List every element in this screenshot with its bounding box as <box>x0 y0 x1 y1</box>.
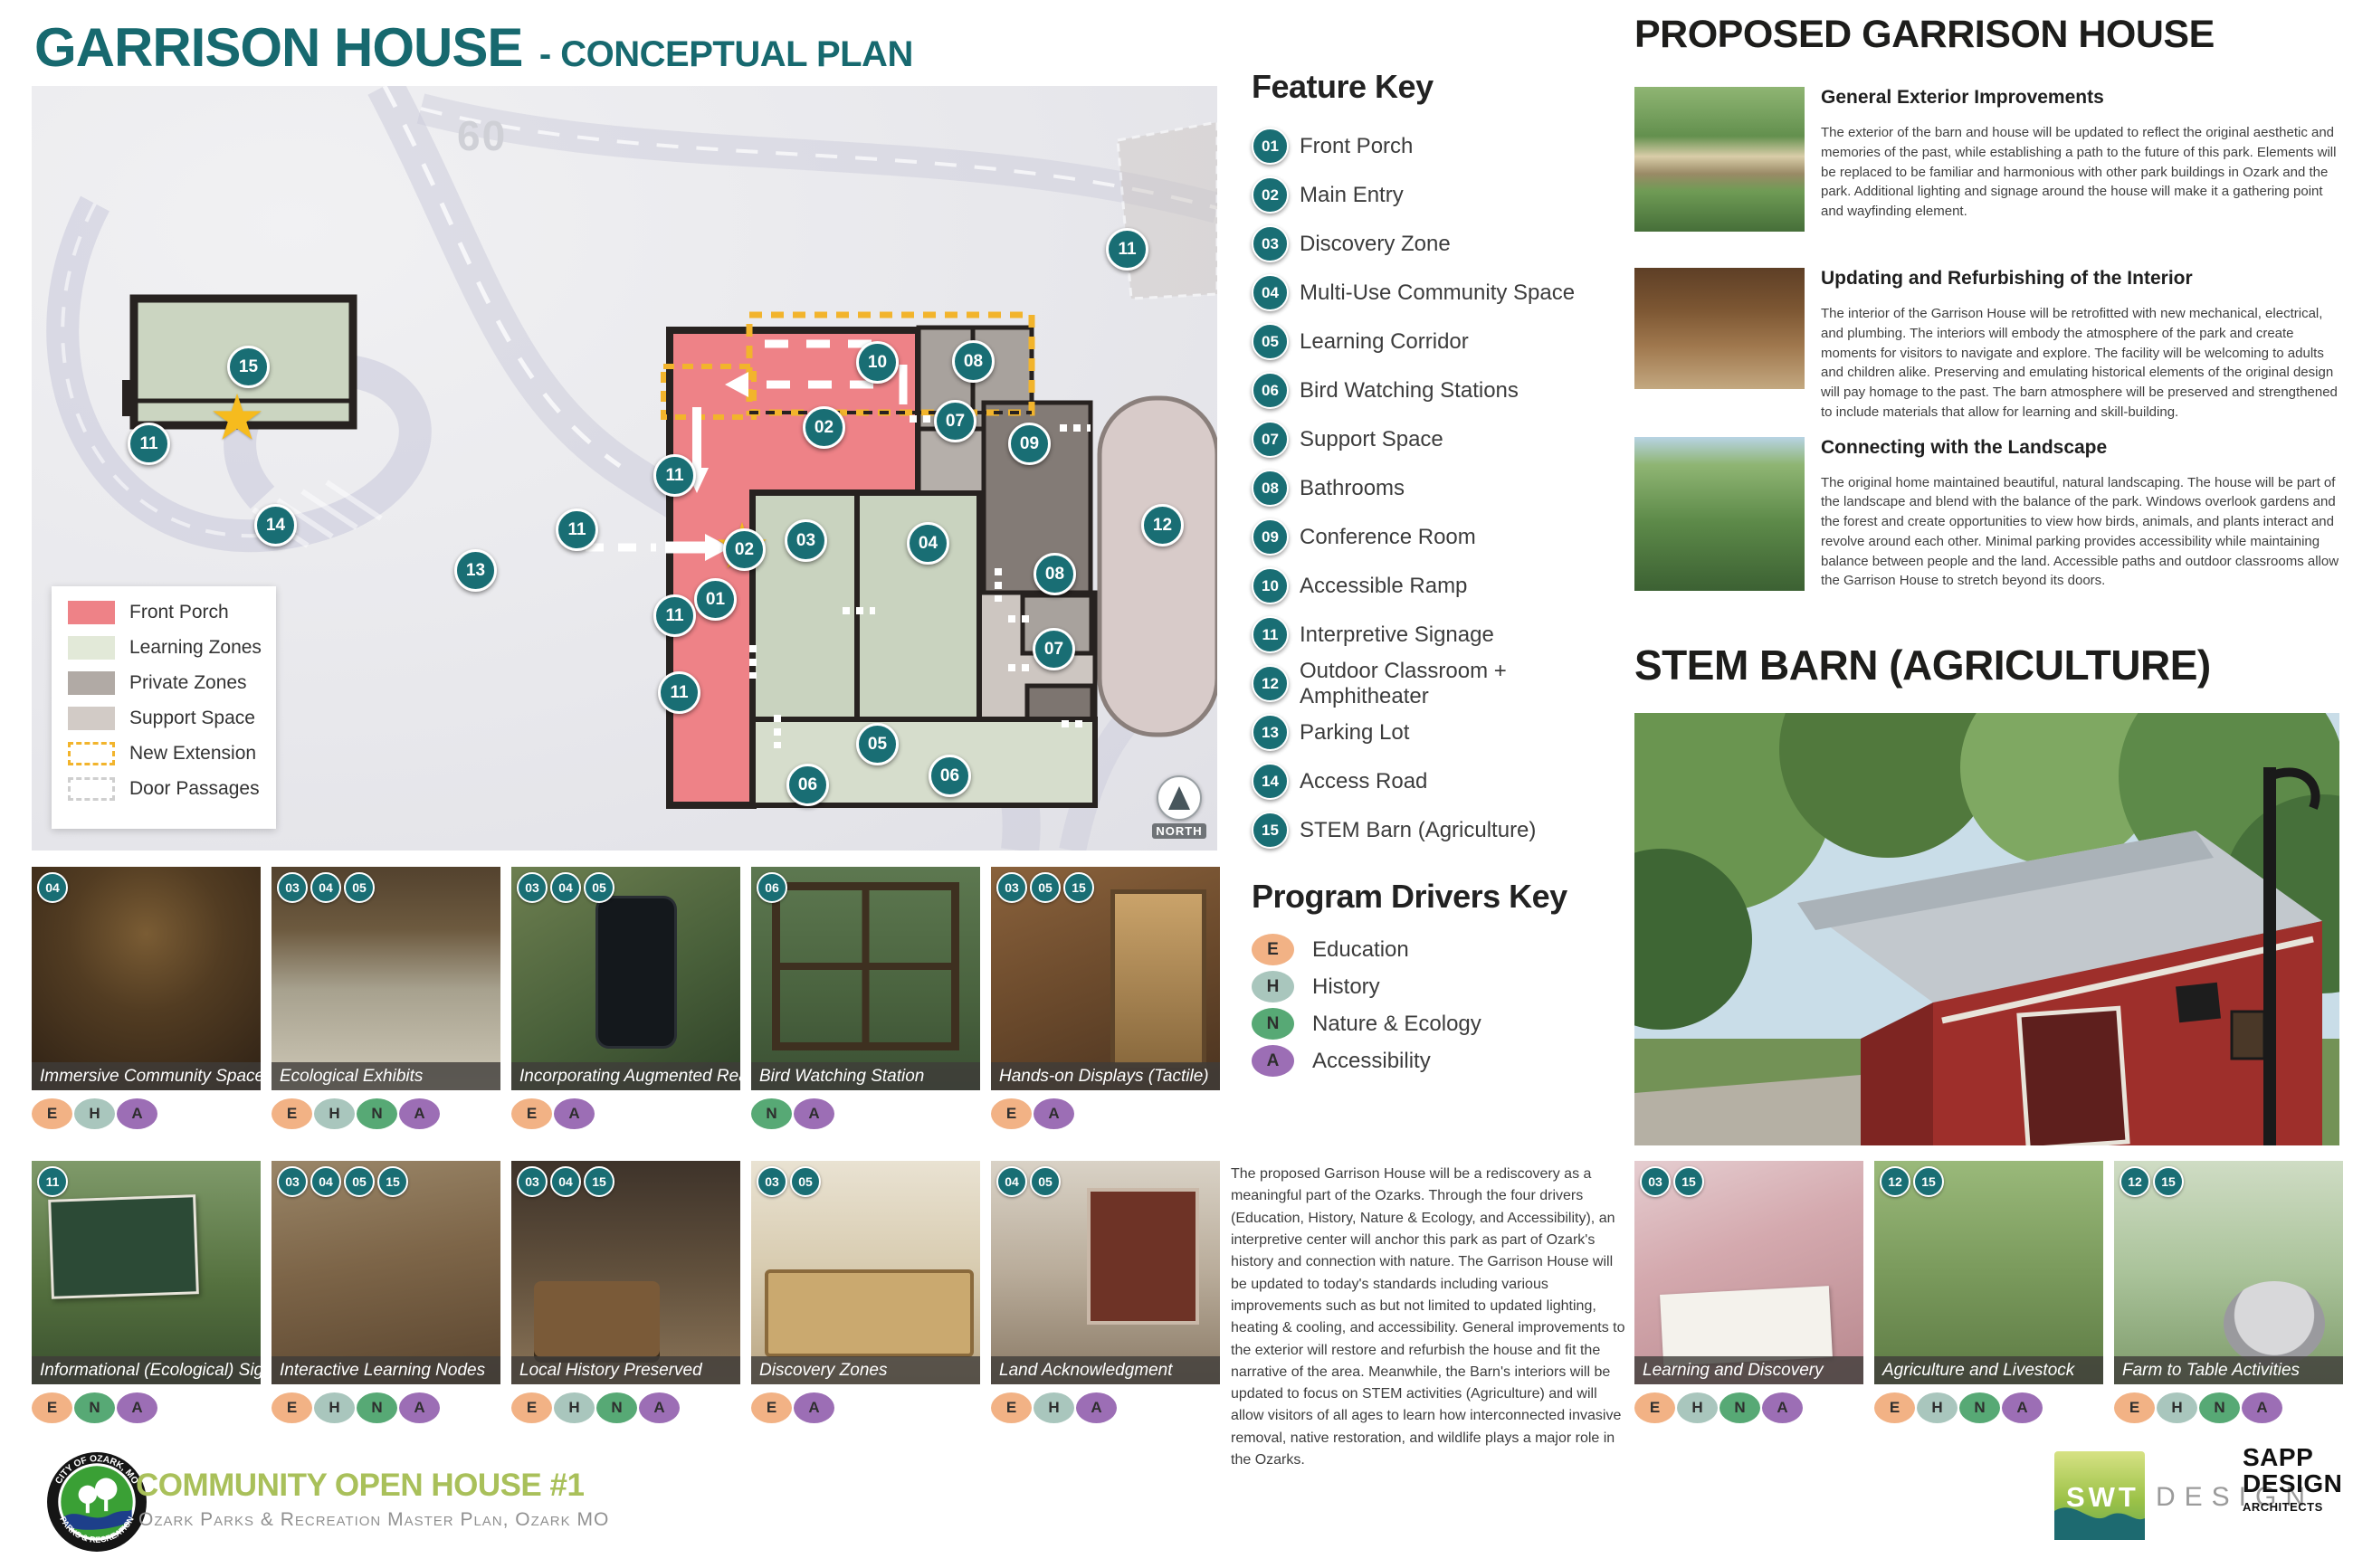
map-marker-15: 15 <box>227 346 270 388</box>
proposed-section: Updating and Refurbishing of the Interio… <box>1634 268 2340 423</box>
driver-badge-E: E <box>1634 1392 1675 1423</box>
feature-label: Bird Watching Stations <box>1300 378 1519 404</box>
legend-label: Learning Zones <box>129 637 262 659</box>
map-marker-07: 07 <box>1033 628 1075 670</box>
photo-driver-badges: ENA <box>32 1392 261 1423</box>
driver-badge-H: H <box>2157 1392 2197 1423</box>
outdoor-classroom-area <box>1100 398 1217 735</box>
driver-badge-E: E <box>2114 1392 2155 1423</box>
photo-caption: Immersive Community Space <box>32 1062 261 1090</box>
feature-label: Bathrooms <box>1300 476 1405 501</box>
feature-number-badge: 06 <box>1252 372 1289 409</box>
feature-key-item-05: 05Learning Corridor <box>1252 325 1632 358</box>
feature-ref-badge-05: 05 <box>790 1166 821 1197</box>
photo-feature-badges: 06 <box>757 872 787 903</box>
section-body: The interior of the Garrison House will … <box>1821 304 2340 423</box>
north-label: NORTH <box>1152 823 1206 839</box>
map-marker-08: 08 <box>1034 553 1076 595</box>
driver-badge-E: E <box>1252 934 1294 965</box>
existing-structure-outline <box>1118 122 1217 299</box>
driver-badge-E: E <box>271 1098 312 1129</box>
highway-60-watermark: 60 <box>457 111 507 160</box>
photo-feature-badges: 1215 <box>2120 1166 2184 1197</box>
legend-item-learning: Learning Zones <box>68 636 276 660</box>
driver-badge-H: H <box>1034 1392 1074 1423</box>
gallery-photo-learning: 0315Learning and Discovery <box>1634 1161 1863 1384</box>
legend-item-door: Door Passages <box>68 777 276 801</box>
driver-badge-A: A <box>1252 1045 1294 1077</box>
feature-ref-badge-05: 05 <box>344 872 375 903</box>
feature-ref-badge-04: 04 <box>550 1166 581 1197</box>
program-drivers-title: Program Drivers Key <box>1252 878 1632 916</box>
gallery-photo-ar: 030405Incorporating Augmented Reality <box>511 867 740 1090</box>
photo-caption: Incorporating Augmented Reality <box>511 1062 740 1090</box>
stem-barn-photo <box>1634 713 2339 1145</box>
photo-feature-badges: 04 <box>37 872 68 903</box>
legend-swatch-support <box>68 707 115 730</box>
title-main: GARRISON HOUSE <box>34 17 522 78</box>
legend-item-support: Support Space <box>68 707 276 730</box>
feature-ref-badge-15: 15 <box>2153 1166 2184 1197</box>
proposed-garrison-house-title: PROPOSED GARRISON HOUSE <box>1634 13 2215 57</box>
feature-key-item-07: 07Support Space <box>1252 423 1632 456</box>
gallery-photo-land: 0405Land Acknowledgment <box>991 1161 1220 1384</box>
photo-feature-badges: 0315 <box>1640 1166 1704 1197</box>
gallery-card: 11Informational (Ecological) SignageENA <box>32 1161 261 1423</box>
photo-caption: Learning and Discovery <box>1634 1356 1863 1384</box>
driver-badge-N: N <box>1719 1392 1760 1423</box>
feature-number-badge: 02 <box>1252 176 1289 214</box>
sapp-line-3: ARCHITECTS <box>2243 1500 2342 1514</box>
map-marker-06: 06 <box>929 755 971 797</box>
photo-driver-badges: EHA <box>32 1098 261 1129</box>
map-marker-10: 10 <box>856 341 899 384</box>
proposed-section-text: General Exterior ImprovementsThe exterio… <box>1821 87 2340 232</box>
table-icon <box>765 1269 974 1357</box>
gallery-card: 030415Local History PreservedEHNA <box>511 1161 740 1423</box>
photo-caption: Local History Preserved <box>511 1356 740 1384</box>
feature-ref-badge-12: 12 <box>1880 1166 1910 1197</box>
gallery-card: 04Immersive Community SpaceEHA <box>32 867 261 1129</box>
feature-key-item-03: 03Discovery Zone <box>1252 227 1632 261</box>
sapp-design-logo: SAPP DESIGN ARCHITECTS <box>2243 1444 2342 1514</box>
gallery-card: 1215Agriculture and LivestockEHNA <box>1874 1161 2103 1423</box>
feature-number-badge: 13 <box>1252 714 1289 751</box>
map-marker-05: 05 <box>856 723 899 765</box>
project-description: The proposed Garrison House will be a re… <box>1231 1164 1627 1471</box>
photo-caption: Interactive Learning Nodes <box>271 1356 500 1384</box>
feature-key-item-01: 01Front Porch <box>1252 129 1632 163</box>
feature-ref-badge-03: 03 <box>517 872 548 903</box>
legend-swatch-private <box>68 671 115 695</box>
gallery-card: 1215Farm to Table ActivitiesEHNA <box>2114 1161 2343 1423</box>
gallery-photo-livestock: 1215Agriculture and Livestock <box>1874 1161 2103 1384</box>
driver-badge-A: A <box>399 1098 440 1129</box>
driver-badge-A: A <box>1076 1392 1117 1423</box>
driver-badge-A: A <box>639 1392 680 1423</box>
photo-caption: Ecological Exhibits <box>271 1062 500 1090</box>
map-marker-11: 11 <box>556 508 598 551</box>
photo-driver-badges: EHNA <box>1874 1392 2103 1423</box>
north-arrow-icon <box>1157 775 1202 821</box>
gallery-photo-discovery: 0305Discovery Zones <box>751 1161 980 1384</box>
driver-badge-E: E <box>751 1392 792 1423</box>
sapp-line-1: SAPP <box>2243 1444 2342 1470</box>
driver-badge-A: A <box>1762 1392 1803 1423</box>
map-marker-06: 06 <box>786 764 829 806</box>
feature-key-item-10: 10Accessible Ramp <box>1252 569 1632 603</box>
driver-label: History <box>1312 974 1380 1000</box>
legend-item-private: Private Zones <box>68 671 276 695</box>
feature-key-item-08: 08Bathrooms <box>1252 471 1632 505</box>
map-marker-08: 08 <box>952 340 995 383</box>
proposed-section: General Exterior ImprovementsThe exterio… <box>1634 87 2340 232</box>
photo-driver-badges: EHNA <box>1634 1392 1863 1423</box>
feature-ref-badge-12: 12 <box>2120 1166 2150 1197</box>
feature-ref-badge-03: 03 <box>277 1166 308 1197</box>
feature-label: Learning Corridor <box>1300 329 1469 355</box>
feature-number-badge: 12 <box>1252 665 1289 702</box>
photo-driver-badges: NA <box>751 1098 980 1129</box>
feature-label: Parking Lot <box>1300 720 1409 746</box>
driver-label: Accessibility <box>1312 1049 1431 1074</box>
feature-ref-badge-15: 15 <box>584 1166 614 1197</box>
north-arrow: NORTH <box>1152 775 1206 839</box>
driver-badge-N: N <box>596 1392 637 1423</box>
feature-ref-badge-04: 04 <box>550 872 581 903</box>
photo-driver-badges: EHNA <box>511 1392 740 1423</box>
feature-ref-badge-05: 05 <box>1030 1166 1061 1197</box>
photo-driver-badges: EHNA <box>271 1098 500 1129</box>
legend-label: Private Zones <box>129 672 247 694</box>
feature-number-badge: 01 <box>1252 128 1289 165</box>
legend-swatch-learning <box>68 636 115 660</box>
feature-number-badge: 14 <box>1252 763 1289 800</box>
feature-key-item-02: 02Main Entry <box>1252 178 1632 212</box>
feature-ref-badge-05: 05 <box>1030 872 1061 903</box>
feature-label: Discovery Zone <box>1300 232 1451 257</box>
gallery-photo-exhibits: 030405Ecological Exhibits <box>271 867 500 1090</box>
window-icon <box>772 882 959 1050</box>
driver-badge-A: A <box>399 1392 440 1423</box>
section-body: The original home maintained beautiful, … <box>1821 473 2340 592</box>
feature-key-item-12: 12Outdoor Classroom + Amphitheater <box>1252 667 1632 700</box>
photo-driver-badges: EHA <box>991 1392 1220 1423</box>
feature-number-badge: 10 <box>1252 567 1289 604</box>
page-title: GARRISON HOUSE - CONCEPTUAL PLAN <box>34 16 913 79</box>
map-legend: Front PorchLearning ZonesPrivate ZonesSu… <box>52 586 276 829</box>
proposed-section: Connecting with the LandscapeThe origina… <box>1634 437 2340 592</box>
gallery-card: 030405Ecological ExhibitsEHNA <box>271 867 500 1129</box>
wagon-icon <box>534 1281 660 1357</box>
legend-item-porch: Front Porch <box>68 601 276 624</box>
photo-caption: Agriculture and Livestock <box>1874 1356 2103 1384</box>
panel-icon <box>1087 1188 1199 1325</box>
photo-driver-badges: EA <box>991 1098 1220 1129</box>
map-marker-11: 11 <box>128 423 170 465</box>
feature-key-item-09: 09Conference Room <box>1252 520 1632 554</box>
driver-badge-H: H <box>314 1392 355 1423</box>
feature-key: Feature Key 01Front Porch02Main Entry03D… <box>1252 68 1632 862</box>
gallery-card: 0305Discovery ZonesEA <box>751 1161 980 1423</box>
feature-number-badge: 05 <box>1252 323 1289 360</box>
section-heading: Connecting with the Landscape <box>1821 437 2340 459</box>
feature-ref-badge-05: 05 <box>344 1166 375 1197</box>
program-drivers-list: EEducationHHistoryNNature & EcologyAAcce… <box>1252 934 1632 1077</box>
feature-ref-badge-15: 15 <box>1063 872 1094 903</box>
driver-badge-H: H <box>1917 1392 1958 1423</box>
photo-feature-badges: 1215 <box>1880 1166 1944 1197</box>
feature-ref-badge-03: 03 <box>996 872 1027 903</box>
gallery-card: 03040515Interactive Learning NodesEHNA <box>271 1161 500 1423</box>
open-house-title: COMMUNITY OPEN HOUSE #1 <box>136 1468 584 1504</box>
photo-feature-badges: 11 <box>37 1166 68 1197</box>
city-of-ozark-seal: CITY OF OZARK, MO PARKS & RECREATION <box>45 1450 148 1554</box>
stem-gallery-row: 0315Learning and DiscoveryEHNA1215Agricu… <box>1634 1161 2343 1423</box>
gallery-photo-nodes: 03040515Interactive Learning Nodes <box>271 1161 500 1384</box>
legend-label: Door Passages <box>129 778 260 800</box>
feature-ref-badge-15: 15 <box>1673 1166 1704 1197</box>
feature-ref-badge-04: 04 <box>310 1166 341 1197</box>
photo-driver-badges: EHNA <box>2114 1392 2343 1423</box>
photo-caption: Hands-on Displays (Tactile) <box>991 1062 1220 1090</box>
photo-caption: Bird Watching Station <box>751 1062 980 1090</box>
map-marker-09: 09 <box>1008 423 1051 465</box>
map-marker-11: 11 <box>658 671 700 714</box>
photo-feature-badges: 030515 <box>996 872 1094 903</box>
feature-label: Outdoor Classroom + Amphitheater <box>1300 659 1632 709</box>
feature-key-list: 01Front Porch02Main Entry03Discovery Zon… <box>1252 129 1632 847</box>
photo-feature-badges: 030405 <box>277 872 375 903</box>
barn-photo-illustration <box>1634 713 2339 1145</box>
feature-label: STEM Barn (Agriculture) <box>1300 818 1536 843</box>
gallery-photo-community: 04Immersive Community Space <box>32 867 261 1090</box>
driver-badge-E: E <box>271 1392 312 1423</box>
feature-ref-badge-06: 06 <box>757 872 787 903</box>
driver-badge-H: H <box>554 1392 595 1423</box>
map-marker-11: 11 <box>653 594 696 637</box>
feature-ref-badge-03: 03 <box>1640 1166 1671 1197</box>
photo-caption: Land Acknowledgment <box>991 1356 1220 1384</box>
gallery-card: 030405Incorporating Augmented RealityEA <box>511 867 740 1129</box>
feature-number-badge: 09 <box>1252 518 1289 556</box>
north-triangle-icon <box>1168 786 1190 810</box>
legend-label: New Extension <box>129 743 256 765</box>
driver-badge-A: A <box>117 1098 157 1129</box>
feature-ref-badge-04: 04 <box>37 872 68 903</box>
feature-ref-badge-05: 05 <box>584 872 614 903</box>
section-heading: Updating and Refurbishing of the Interio… <box>1821 268 2340 290</box>
program-driver-item-A: AAccessibility <box>1252 1045 1632 1077</box>
driver-badge-H: H <box>1677 1392 1718 1423</box>
driver-badge-E: E <box>511 1098 552 1129</box>
feature-ref-badge-11: 11 <box>37 1166 68 1197</box>
feature-number-badge: 07 <box>1252 421 1289 458</box>
feature-ref-badge-15: 15 <box>377 1166 408 1197</box>
legend-label: Front Porch <box>129 602 229 623</box>
gallery-card: 0315Learning and DiscoveryEHNA <box>1634 1161 1863 1423</box>
map-marker-14: 14 <box>254 504 297 546</box>
feature-ref-badge-04: 04 <box>996 1166 1027 1197</box>
sign-icon <box>48 1194 199 1298</box>
feature-label: Conference Room <box>1300 525 1476 550</box>
driver-badge-A: A <box>554 1098 595 1129</box>
phone-icon <box>598 898 673 1046</box>
driver-badge-H: H <box>74 1098 115 1129</box>
proposed-sections: General Exterior ImprovementsThe exterio… <box>1634 87 2340 591</box>
driver-badge-H: H <box>1252 971 1294 1003</box>
driver-badge-A: A <box>2002 1392 2043 1423</box>
map-marker-03: 03 <box>785 519 827 562</box>
photo-feature-badges: 0405 <box>996 1166 1061 1197</box>
photo-driver-badges: EA <box>751 1392 980 1423</box>
driver-badge-A: A <box>794 1098 834 1129</box>
proposed-section-text: Connecting with the LandscapeThe origina… <box>1821 437 2340 592</box>
driver-badge-N: N <box>74 1392 115 1423</box>
driver-badge-E: E <box>511 1392 552 1423</box>
proposed-section-text: Updating and Refurbishing of the Interio… <box>1821 268 2340 423</box>
photo-caption: Informational (Ecological) Signage <box>32 1356 261 1384</box>
paper-icon <box>1660 1286 1833 1366</box>
program-drivers-key: Program Drivers Key EEducationHHistoryNN… <box>1252 878 1632 1082</box>
feature-ref-badge-03: 03 <box>277 872 308 903</box>
driver-badge-E: E <box>32 1098 72 1129</box>
map-marker-01: 01 <box>694 578 737 621</box>
photo-feature-badges: 030415 <box>517 1166 614 1197</box>
feature-label: Support Space <box>1300 427 1443 452</box>
driver-badge-E: E <box>991 1392 1032 1423</box>
section-heading: General Exterior Improvements <box>1821 87 2340 109</box>
map-marker-02: 02 <box>723 528 766 571</box>
title-sub: - CONCEPTUAL PLAN <box>539 34 913 74</box>
driver-badge-N: N <box>2199 1392 2240 1423</box>
driver-badge-N: N <box>1252 1008 1294 1040</box>
feature-key-title: Feature Key <box>1252 68 1632 106</box>
driver-badge-E: E <box>1874 1392 1915 1423</box>
feature-ref-badge-03: 03 <box>757 1166 787 1197</box>
feature-key-item-11: 11Interpretive Signage <box>1252 618 1632 651</box>
driver-badge-E: E <box>991 1098 1032 1129</box>
photo-driver-badges: EA <box>511 1098 740 1129</box>
legend-swatch-porch <box>68 601 115 624</box>
feature-number-badge: 03 <box>1252 225 1289 262</box>
section-body: The exterior of the barn and house will … <box>1821 123 2340 222</box>
open-house-subtitle: Ozark Parks & Recreation Master Plan, Oz… <box>138 1509 609 1531</box>
gallery-photo-farm: 1215Farm to Table Activities <box>2114 1161 2343 1384</box>
barninterior-photo <box>1634 268 1805 389</box>
legend-list: Front PorchLearning ZonesPrivate ZonesSu… <box>68 601 276 801</box>
legend-swatch-extension <box>68 742 115 765</box>
driver-badge-A: A <box>117 1392 157 1423</box>
driver-label: Nature & Ecology <box>1312 1012 1481 1037</box>
house-photo <box>1634 87 1805 232</box>
feature-label: Interpretive Signage <box>1300 622 1494 648</box>
gallery-photo-history: 030415Local History Preserved <box>511 1161 740 1384</box>
photo-caption: Discovery Zones <box>751 1356 980 1384</box>
driver-badge-N: N <box>357 1098 397 1129</box>
photo-caption: Farm to Table Activities <box>2114 1356 2343 1384</box>
map-marker-02: 02 <box>803 406 845 449</box>
feature-number-badge: 04 <box>1252 274 1289 311</box>
conceptual-plan-map: 60 ★★15111413111110080207091102030412080… <box>32 86 1217 851</box>
driver-badge-A: A <box>1034 1098 1074 1129</box>
feature-key-item-14: 14Access Road <box>1252 765 1632 798</box>
gallery-row-2: 11Informational (Ecological) SignageENA0… <box>32 1161 1220 1423</box>
legend-item-extension: New Extension <box>68 742 276 765</box>
map-marker-11: 11 <box>653 454 696 497</box>
program-driver-item-H: HHistory <box>1252 971 1632 1003</box>
map-marker-12: 12 <box>1141 504 1184 546</box>
program-driver-item-E: EEducation <box>1252 934 1632 965</box>
program-driver-item-N: NNature & Ecology <box>1252 1008 1632 1040</box>
map-marker-07: 07 <box>934 400 976 442</box>
driver-badge-H: H <box>314 1098 355 1129</box>
feature-label: Multi-Use Community Space <box>1300 280 1575 306</box>
driver-badge-A: A <box>2242 1392 2282 1423</box>
driver-badge-A: A <box>794 1392 834 1423</box>
feature-number-badge: 15 <box>1252 812 1289 849</box>
photo-feature-badges: 0305 <box>757 1166 821 1197</box>
map-marker-13: 13 <box>454 549 497 592</box>
feature-label: Main Entry <box>1300 183 1404 208</box>
gallery-row-1: 04Immersive Community SpaceEHA030405Ecol… <box>32 867 1220 1129</box>
photo-feature-badges: 030405 <box>517 872 614 903</box>
feature-number-badge: 11 <box>1252 616 1289 653</box>
map-marker-04: 04 <box>907 522 949 565</box>
legend-swatch-door <box>68 777 115 801</box>
landscape-photo <box>1634 437 1805 591</box>
stem-barn-title: STEM BARN (AGRICULTURE) <box>1634 641 2211 689</box>
pot-icon <box>2224 1281 2324 1366</box>
highlight-star-icon: ★ <box>209 386 266 450</box>
sapp-line-2: DESIGN <box>2243 1470 2342 1497</box>
feature-ref-badge-04: 04 <box>310 872 341 903</box>
feature-label: Front Porch <box>1300 134 1413 159</box>
gallery-card: 06Bird Watching StationNA <box>751 867 980 1129</box>
gallery-photo-signage: 11Informational (Ecological) Signage <box>32 1161 261 1384</box>
case-icon <box>1110 889 1206 1069</box>
feature-key-item-13: 13Parking Lot <box>1252 716 1632 749</box>
driver-label: Education <box>1312 937 1409 963</box>
legend-label: Support Space <box>129 708 255 729</box>
photo-feature-badges: 03040515 <box>277 1166 408 1197</box>
driver-badge-E: E <box>32 1392 72 1423</box>
garrison-house-poster: GARRISON HOUSE - CONCEPTUAL PLAN <box>0 0 2353 1568</box>
feature-key-item-06: 06Bird Watching Stations <box>1252 374 1632 407</box>
feature-label: Accessible Ramp <box>1300 574 1467 599</box>
feature-ref-badge-15: 15 <box>1913 1166 1944 1197</box>
feature-key-item-15: 15STEM Barn (Agriculture) <box>1252 813 1632 847</box>
driver-badge-N: N <box>1959 1392 2000 1423</box>
gallery-photo-bird: 06Bird Watching Station <box>751 867 980 1090</box>
swt-abbr: SWT <box>2066 1481 2139 1514</box>
gallery-card: 0405Land AcknowledgmentEHA <box>991 1161 1220 1423</box>
driver-badge-N: N <box>357 1392 397 1423</box>
driver-badge-N: N <box>751 1098 792 1129</box>
feature-number-badge: 08 <box>1252 470 1289 507</box>
gallery-card: 030515Hands-on Displays (Tactile)EA <box>991 867 1220 1129</box>
feature-label: Access Road <box>1300 769 1427 794</box>
feature-key-item-04: 04Multi-Use Community Space <box>1252 276 1632 309</box>
photo-driver-badges: EHNA <box>271 1392 500 1423</box>
map-marker-11: 11 <box>1106 228 1148 271</box>
gallery-photo-tactile: 030515Hands-on Displays (Tactile) <box>991 867 1220 1090</box>
feature-ref-badge-03: 03 <box>517 1166 548 1197</box>
